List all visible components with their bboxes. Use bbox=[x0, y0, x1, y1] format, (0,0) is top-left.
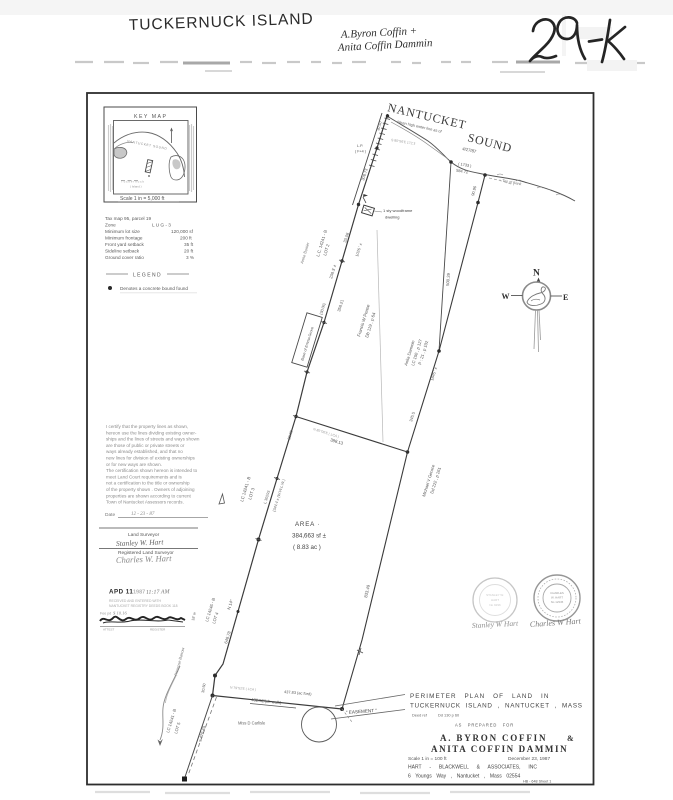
svg-text:Stanley W. Hart: Stanley W. Hart bbox=[116, 537, 165, 548]
svg-text:$ 10.16: $ 10.16 bbox=[113, 611, 127, 616]
svg-text:LEGEND: LEGEND bbox=[133, 273, 162, 279]
svg-text:384,663 sf ±: 384,663 sf ± bbox=[292, 533, 327, 540]
svg-text:Miss D Carlisle: Miss D Carlisle bbox=[238, 721, 266, 726]
svg-text:&: & bbox=[567, 734, 574, 743]
svg-text:Town of Nantucket Assesso: Town of Nantucket Assessors records. bbox=[106, 500, 184, 505]
svg-text:HART: HART bbox=[491, 598, 499, 602]
svg-text:35 ft: 35 ft bbox=[184, 242, 194, 247]
svg-text:December 23, 1987: December 23, 1987 bbox=[508, 756, 550, 762]
svg-text:Scale 1 in = 100 ft: Scale 1 in = 100 ft bbox=[408, 756, 447, 762]
svg-text:20 ft: 20 ft bbox=[184, 249, 194, 254]
svg-text:are those of public or priva: are those of public or private streets o… bbox=[106, 443, 185, 448]
svg-text:PERIMETER PLAN OF LAND: PERIMETER PLAN OF LAND IN bbox=[410, 693, 550, 700]
svg-text:No 12345: No 12345 bbox=[551, 600, 564, 604]
svg-text:TUCKERNUCK ISLAND , NANTUCKE: TUCKERNUCK ISLAND , NANTUCKET , MASS bbox=[410, 703, 583, 710]
svg-text:not a certification to the: not a certification to the title or owne… bbox=[106, 481, 190, 486]
svg-text:Front yard setback: Front yard setback bbox=[105, 242, 144, 247]
svg-text:L.P.: L.P. bbox=[357, 144, 363, 148]
svg-text:Date: Date bbox=[105, 512, 115, 518]
svg-text:120,000 sf: 120,000 sf bbox=[171, 229, 194, 234]
svg-text:Scale 1 in = 5,000 ft: Scale 1 in = 5,000 ft bbox=[120, 196, 165, 202]
svg-text:Sideline setback: Sideline setback bbox=[105, 249, 140, 254]
svg-text:ways already established, a: ways already established, and that no bbox=[106, 449, 183, 454]
svg-text:Denotes a concrete bound: Denotes a concrete bound found bbox=[120, 286, 188, 291]
svg-text:ANITA COFFIN DAMMIN: ANITA COFFIN DAMMIN bbox=[431, 744, 568, 754]
svg-text:Fee pd: Fee pd bbox=[100, 612, 111, 616]
svg-text:11:17 AM: 11:17 AM bbox=[146, 589, 171, 596]
svg-text:of the property shown . Owne: of the property shown . Owners of adjoin… bbox=[106, 487, 195, 492]
svg-text:APD 11: APD 11 bbox=[109, 589, 133, 596]
svg-text:AREA ·: AREA · bbox=[295, 521, 320, 528]
svg-text:Minimum frontage: Minimum frontage bbox=[105, 236, 143, 241]
svg-text:CHARLES: CHARLES bbox=[550, 591, 564, 595]
svg-text:A. BYRON COFFIN: A. BYRON COFFIN bbox=[440, 733, 547, 743]
svg-text:new lines for division of e: new lines for division of existing owner… bbox=[106, 456, 196, 461]
svg-text:6 Youngs Way , Nantuck: 6 Youngs Way , Nantucket , Mass 02554 bbox=[408, 774, 520, 780]
svg-text:HART - BLACKWELL & A: HART - BLACKWELL & ASSOCIATES, INC bbox=[408, 765, 537, 771]
svg-text:No 9296: No 9296 bbox=[489, 603, 501, 607]
svg-text:( Island ): ( Island ) bbox=[130, 185, 142, 189]
svg-text:ships and the lines of street: ships and the lines of streets and ways … bbox=[106, 437, 200, 442]
svg-text:1 sty woodframe: 1 sty woodframe bbox=[383, 208, 413, 213]
svg-text:500.39: 500.39 bbox=[445, 272, 451, 286]
svg-text:HB - 648 Sheet 1: HB - 648 Sheet 1 bbox=[523, 780, 551, 784]
svg-text:Zone: Zone bbox=[105, 223, 116, 228]
svg-text:Ground cover ratio: Ground cover ratio bbox=[105, 255, 144, 260]
svg-text:KEY MAP: KEY MAP bbox=[134, 114, 167, 120]
svg-text:W. HART: W. HART bbox=[551, 596, 563, 600]
svg-text:dwelling: dwelling bbox=[385, 215, 399, 220]
svg-text:L U G - 3: L U G - 3 bbox=[152, 223, 171, 228]
svg-text:ATTEST: ATTEST bbox=[103, 628, 114, 632]
svg-text:Charles W. Hart: Charles W. Hart bbox=[116, 553, 173, 565]
svg-text:I certify that the property: I certify that the property lines as sho… bbox=[106, 424, 188, 429]
svg-text:meet Land Court requiremen: meet Land Court requirements and is bbox=[106, 474, 183, 479]
svg-text:3 %: 3 % bbox=[186, 255, 194, 260]
svg-text:The certification shown hereon: The certification shown hereon is intend… bbox=[106, 468, 198, 473]
svg-text:NANTUCKET REGISTRY DEEDS BO: NANTUCKET REGISTRY DEEDS BOOK 118 bbox=[109, 604, 178, 608]
svg-text:E: E bbox=[563, 293, 568, 302]
svg-text:200 ft: 200 ft bbox=[180, 236, 192, 241]
svg-text:T u c k e r n u c k: T u c k e r n u c k bbox=[121, 180, 144, 184]
svg-text:properties are shown accordi: properties are shown according to curren… bbox=[106, 493, 191, 498]
svg-text:REGISTER: REGISTER bbox=[150, 628, 166, 632]
svg-text:12 - 23 - 87: 12 - 23 - 87 bbox=[131, 512, 155, 517]
svg-text:1987: 1987 bbox=[133, 590, 145, 596]
svg-text:Deed ref: Deed ref bbox=[412, 713, 428, 718]
svg-text:( 8.83 ac ): ( 8.83 ac ) bbox=[293, 544, 321, 551]
svg-text:Dd 130 p 60: Dd 130 p 60 bbox=[438, 713, 460, 718]
svg-text:AS PREPARED FOR: AS PREPARED FOR bbox=[455, 723, 514, 728]
svg-text:hereon use the lines divid: hereon use the lines dividing existing o… bbox=[106, 430, 197, 435]
svg-text:( F+4 ): ( F+4 ) bbox=[355, 150, 366, 154]
svg-text:W: W bbox=[502, 292, 510, 301]
svg-text:Minimum lot size: Minimum lot size bbox=[105, 229, 140, 234]
svg-text:RECEIVED AND ENTERED WITH: RECEIVED AND ENTERED WITH bbox=[109, 599, 162, 603]
svg-text:N: N bbox=[533, 269, 540, 279]
svg-text:STANLEY W.: STANLEY W. bbox=[486, 593, 504, 597]
svg-text:or for new ways are shown.: or for new ways are shown. bbox=[106, 462, 162, 467]
svg-text:Tax map 95, parcel 19: Tax map 95, parcel 19 bbox=[105, 216, 152, 221]
